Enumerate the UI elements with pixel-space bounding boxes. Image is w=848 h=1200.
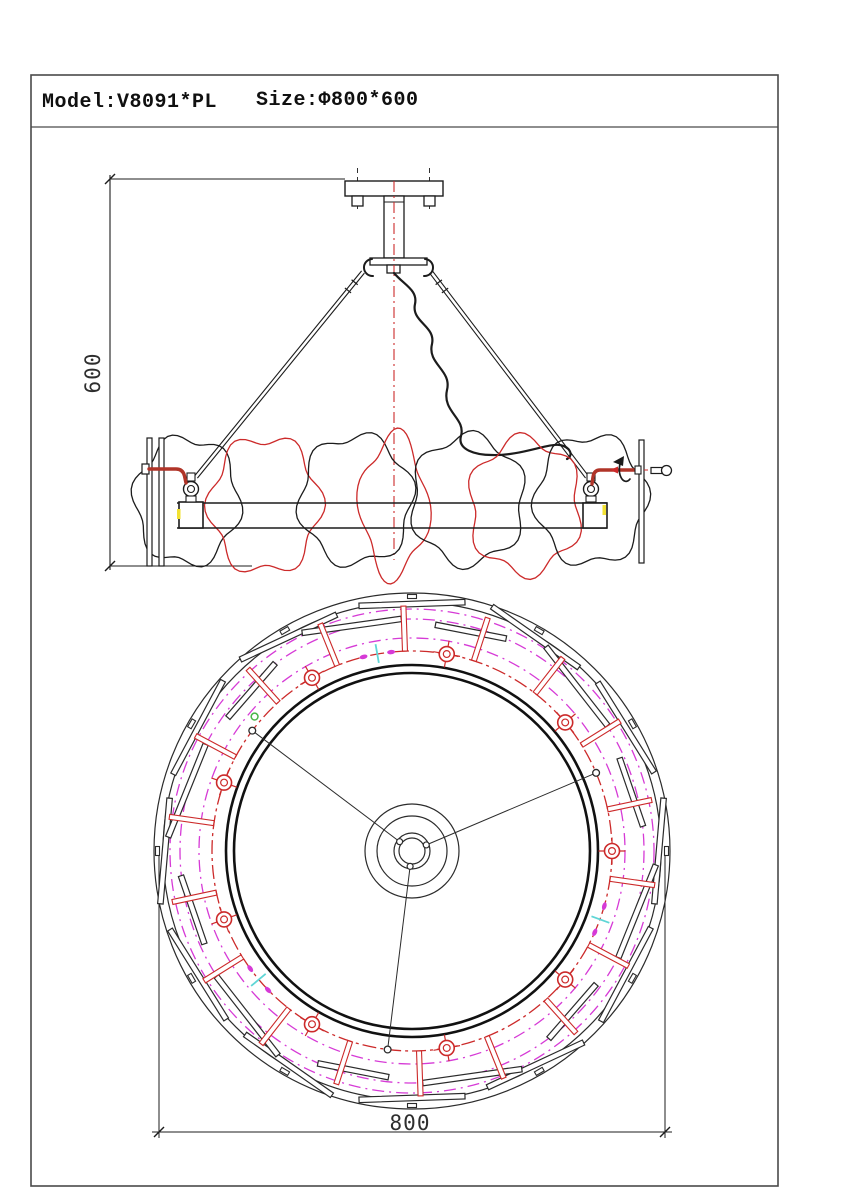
lamp-circle-outer <box>439 1040 454 1055</box>
wire-marker-dot <box>591 928 598 937</box>
plan-view <box>152 593 672 1138</box>
wire-marker-dot <box>359 654 368 660</box>
glass-centerline-circle <box>170 609 654 1093</box>
lamp-circle-outer <box>439 647 454 662</box>
right-elbow-arm <box>592 470 637 484</box>
hanging-rod <box>430 273 586 478</box>
swivel-joint-core <box>188 486 195 493</box>
swivel-joint-core <box>588 486 595 493</box>
radial-support-bar <box>401 606 408 651</box>
support-spoke <box>255 732 400 841</box>
radial-support-bar <box>334 1040 353 1084</box>
wire-marker-tick <box>591 916 609 922</box>
lamp-circle-outer <box>558 972 573 987</box>
radial-support-bar <box>259 1007 291 1046</box>
lamp-centerline-circle <box>212 651 612 1051</box>
radial-support-bar <box>471 617 490 661</box>
height-dimension-label: 600 <box>81 353 105 394</box>
rotation-arrow-head <box>613 456 624 466</box>
yellow-contact-mark <box>177 509 181 519</box>
spoke-rim-joint <box>384 1046 391 1053</box>
green-marker <box>251 713 258 720</box>
lamp-circle-outer <box>558 715 573 730</box>
radial-support-bar <box>172 890 217 904</box>
inner-ring-circle <box>234 673 590 1029</box>
diameter-dimension-label: 800 <box>390 1111 431 1135</box>
lamp-circle-outer <box>605 844 620 859</box>
ring-edge-bar <box>639 440 644 563</box>
ring-edge-bar <box>159 438 164 566</box>
yellow-contact-mark <box>603 505 607 515</box>
bar-clip-tick <box>665 847 669 856</box>
lamp-circle-outer <box>217 775 232 790</box>
spoke-rim-joint <box>593 769 600 776</box>
inner-glass-bar <box>435 622 507 641</box>
bar-clip-tick <box>188 719 196 729</box>
lamp-circle-outer <box>217 912 232 927</box>
canopy-screw <box>424 196 435 206</box>
joint-neck <box>186 496 196 502</box>
hub-pin <box>423 842 429 848</box>
hub-pin <box>407 863 413 869</box>
lamp-circle-outer <box>305 1017 320 1032</box>
lamp-position-marker <box>300 1013 323 1036</box>
lamp-position-marker <box>599 838 626 865</box>
spoke-rim-joint <box>249 727 256 734</box>
glass-shade-profile-black <box>296 433 416 567</box>
technical-drawing-svg: 600 800 <box>0 0 848 1200</box>
outer-glass-bar <box>359 1093 465 1102</box>
outer-ring-circle <box>163 602 661 1100</box>
glass-shade-profile-red <box>205 438 326 572</box>
lamp-position-marker <box>211 907 236 932</box>
socket-box <box>179 502 203 528</box>
hub-ring <box>377 816 447 886</box>
radial-support-bar <box>580 719 621 747</box>
lamp-position-marker <box>300 666 323 689</box>
direction-arrow <box>610 467 618 474</box>
joint-eyelet <box>187 473 195 481</box>
lamp-position-marker <box>211 770 236 795</box>
bar-clip-tick <box>408 595 417 599</box>
bar-clip-tick <box>280 627 290 635</box>
lamp-position-marker <box>433 1035 460 1062</box>
hanging-rod <box>195 271 362 476</box>
inner-glass-bar <box>317 1061 389 1080</box>
spreader-flange <box>370 258 427 265</box>
joint-neck <box>586 496 596 502</box>
bar-mount-block <box>635 466 641 474</box>
outer-ring-circle <box>154 593 670 1109</box>
lamp-circle-outer <box>305 670 320 685</box>
loose-screw-head <box>662 466 672 476</box>
power-cable <box>394 273 571 459</box>
wire-marker-dot <box>387 649 395 654</box>
glass-centerline-circle <box>199 638 625 1064</box>
hub-ring <box>365 804 459 898</box>
loose-screw-shaft <box>651 468 662 474</box>
left-elbow-arm <box>149 469 186 483</box>
radial-support-bar <box>533 656 565 695</box>
support-spoke <box>427 774 594 845</box>
canopy-screw <box>352 196 363 206</box>
bar-clip-tick <box>534 1067 544 1075</box>
outer-glass-bar <box>359 599 465 608</box>
lamp-position-marker <box>433 641 460 668</box>
hub-pin <box>397 839 403 845</box>
lamp-position-marker <box>555 969 576 990</box>
elevation-view <box>105 168 672 584</box>
hanging-rod <box>432 271 588 476</box>
wire-marker-dot <box>601 902 607 911</box>
radial-support-bar <box>417 1051 424 1096</box>
radial-support-bar <box>203 955 244 983</box>
inner-glass-bar <box>617 757 646 827</box>
bar-clip-tick <box>156 847 160 856</box>
bar-clip-tick <box>408 1104 417 1108</box>
radial-support-bar <box>607 798 652 812</box>
ring-edge-bar <box>147 438 152 566</box>
inner-glass-bar <box>178 875 207 945</box>
drawing-sheet: { "title_block": { "model": "Model:V8091… <box>0 0 848 1200</box>
bar-clip-tick <box>628 973 636 983</box>
inner-ring-circle <box>226 665 598 1037</box>
